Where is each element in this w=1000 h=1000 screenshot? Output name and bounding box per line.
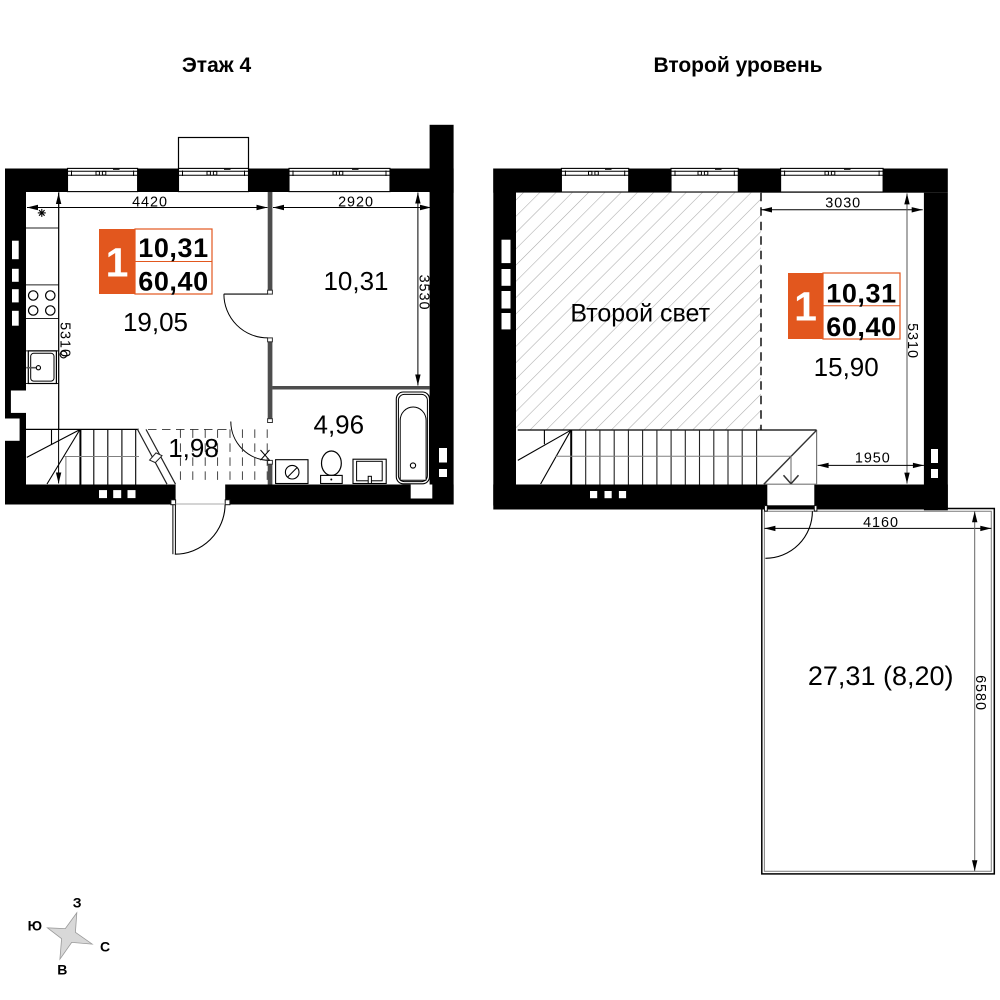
svg-text:1: 1 — [794, 284, 817, 330]
svg-text:Этаж 4: Этаж 4 — [182, 54, 252, 77]
svg-text:60,40: 60,40 — [138, 267, 209, 297]
svg-text:19,05: 19,05 — [123, 307, 188, 337]
svg-text:60,40: 60,40 — [826, 312, 897, 342]
svg-text:4,96: 4,96 — [313, 410, 364, 440]
svg-text:3530: 3530 — [415, 275, 431, 311]
svg-text:15,90: 15,90 — [814, 352, 879, 382]
svg-text:5310: 5310 — [904, 323, 920, 359]
svg-text:5310: 5310 — [56, 322, 72, 358]
svg-text:6580: 6580 — [972, 675, 988, 711]
svg-text:Второй уровень: Второй уровень — [653, 54, 822, 77]
svg-text:Ю: Ю — [28, 918, 42, 934]
svg-text:4160: 4160 — [863, 515, 899, 531]
svg-text:С: С — [100, 939, 110, 955]
svg-text:27,31 (8,20): 27,31 (8,20) — [808, 661, 954, 691]
svg-text:10,31: 10,31 — [323, 266, 388, 296]
svg-text:1950: 1950 — [855, 450, 891, 466]
svg-text:1,98: 1,98 — [168, 433, 219, 463]
svg-text:В: В — [57, 961, 67, 977]
svg-text:1: 1 — [106, 239, 129, 285]
svg-text:2920: 2920 — [338, 194, 374, 210]
svg-text:10,31: 10,31 — [826, 278, 897, 308]
svg-text:4420: 4420 — [132, 194, 168, 210]
svg-text:З: З — [73, 894, 82, 910]
svg-text:3030: 3030 — [825, 195, 861, 211]
svg-text:Второй свет: Второй свет — [570, 300, 710, 328]
svg-text:10,31: 10,31 — [138, 233, 209, 263]
